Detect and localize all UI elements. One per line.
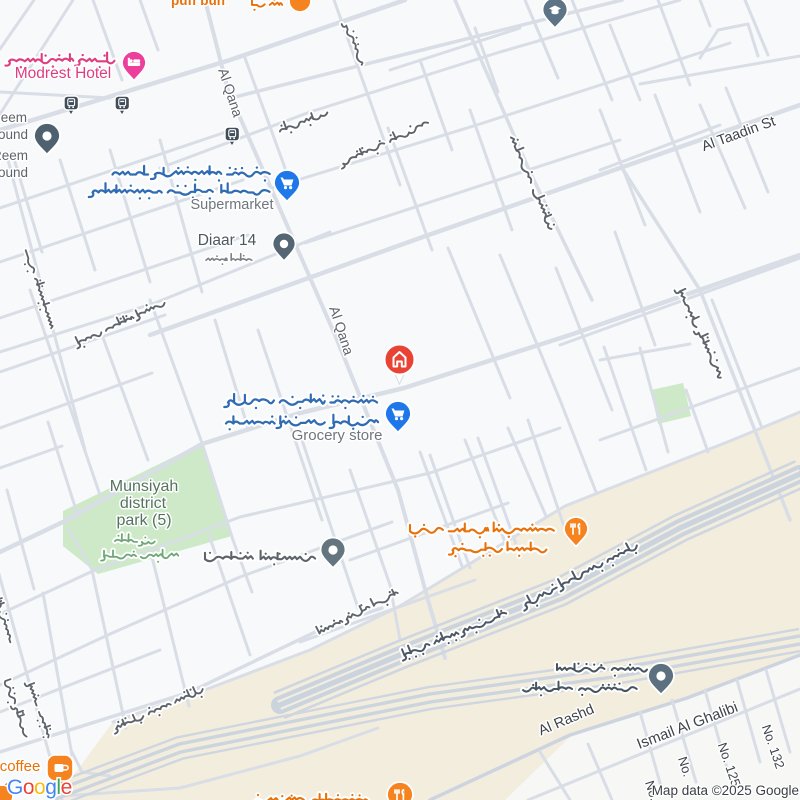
svg-text:ound: ound [0, 165, 28, 180]
svg-text:park (5): park (5) [116, 512, 171, 529]
svg-text:Munsiyah: Munsiyah [110, 478, 178, 495]
svg-text:puff bun: puff bun [171, 0, 225, 8]
svg-text:ound: ound [0, 127, 28, 142]
svg-text:Reem: Reem [0, 148, 28, 163]
svg-text:Diaar 14: Diaar 14 [198, 232, 257, 249]
svg-text:Modrest Hotel: Modrest Hotel [15, 65, 111, 82]
svg-text:Grocery store: Grocery store [292, 427, 383, 444]
svg-text:Map data ©2025 Google: Map data ©2025 Google [652, 783, 799, 798]
svg-text:Supermarket: Supermarket [190, 197, 273, 213]
svg-text:district: district [120, 495, 167, 512]
svg-text:coffee: coffee [0, 758, 40, 775]
svg-text:eem: eem [1, 110, 27, 125]
svg-text:Google: Google [7, 776, 72, 799]
